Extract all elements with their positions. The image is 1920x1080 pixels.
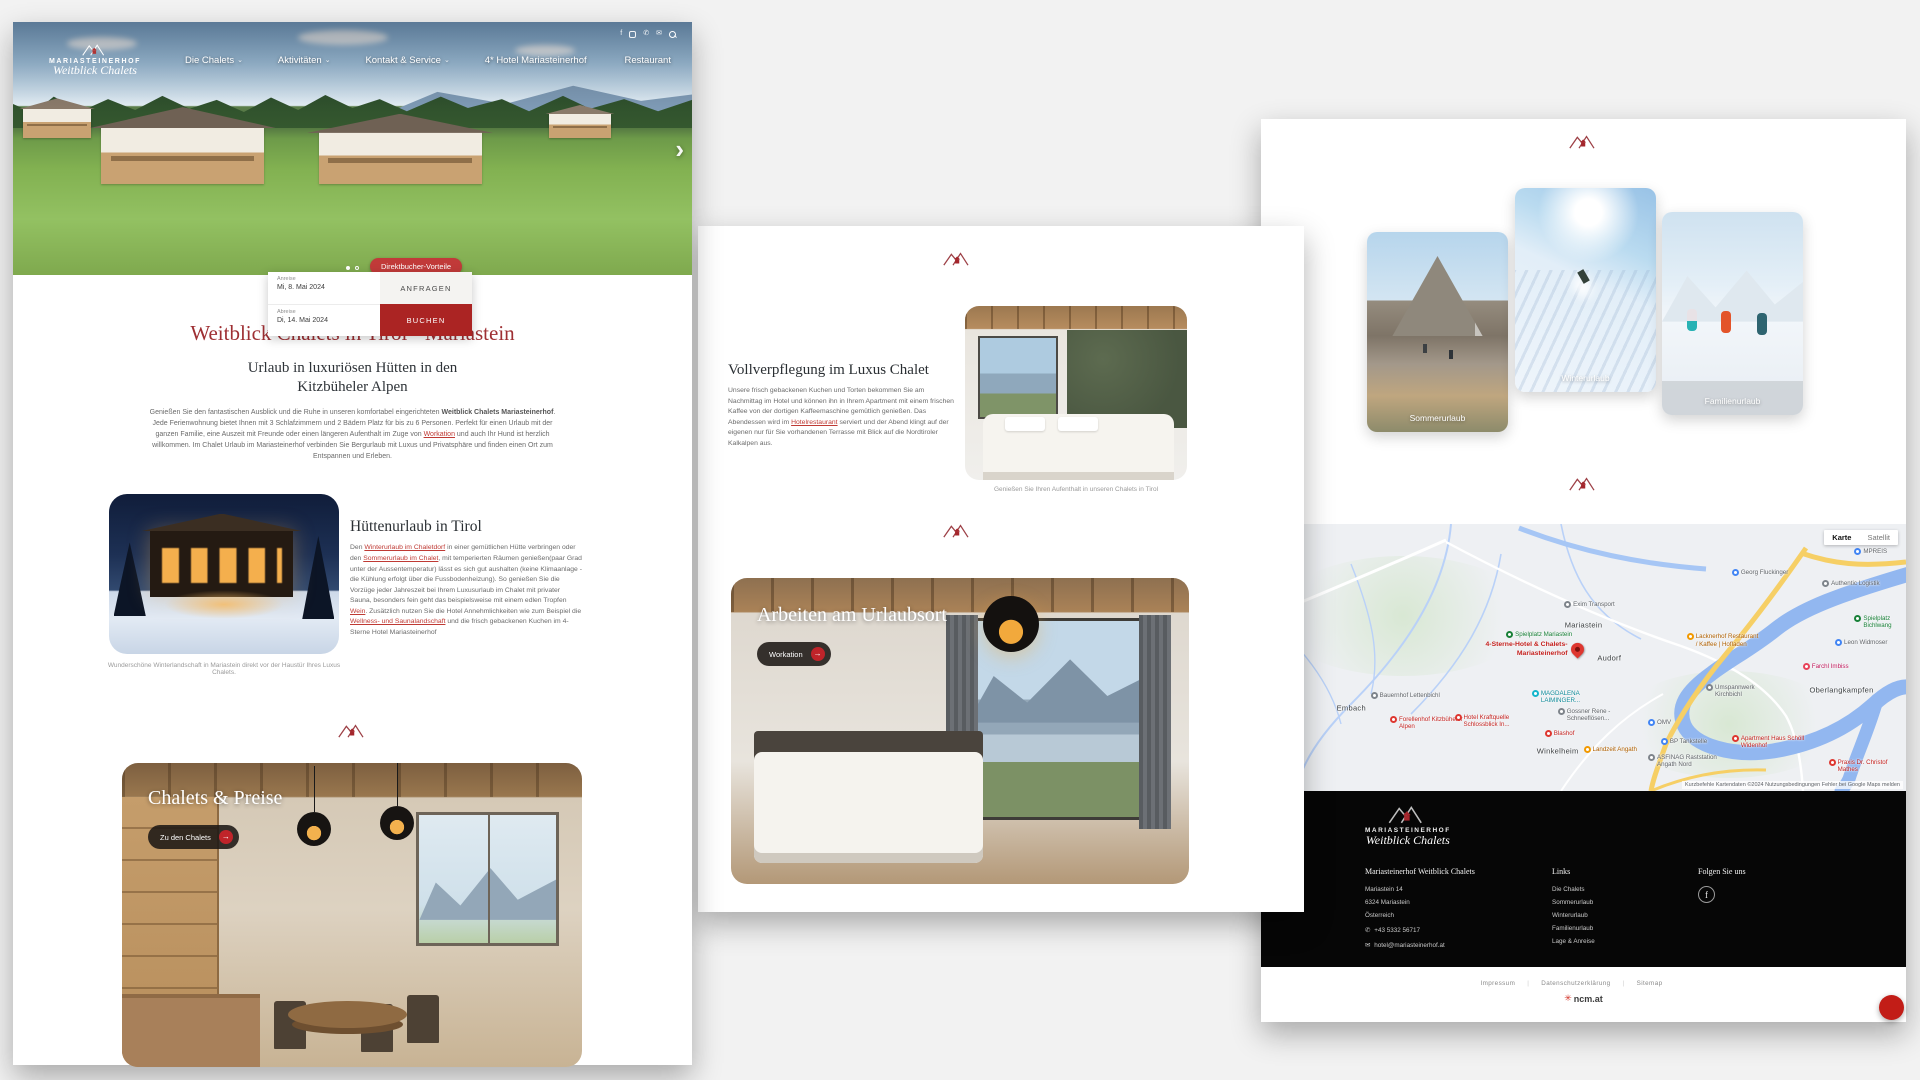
footer-follow-title: Folgen Sie uns — [1698, 867, 1746, 876]
map-poi[interactable]: MPREIS — [1854, 548, 1887, 555]
curtain-shape — [1139, 615, 1171, 829]
vollverpflegung-text: Vollverpflegung im Luxus Chalet Unsere f… — [728, 362, 960, 449]
address-line: Mariastein 14 — [1365, 886, 1535, 893]
page-home: f ✆ ✉ MARIASTEINERHOF Weitblick Chalets — [13, 22, 692, 1065]
map-satellit-button[interactable]: Satellit — [1859, 530, 1898, 545]
map-pin-icon — [1835, 639, 1842, 646]
map-poi[interactable]: Blashof — [1545, 730, 1575, 737]
map-town-label: Oberlangkampfen — [1809, 685, 1873, 694]
nav-item[interactable]: 4* Hotel Mariasteinerhof — [485, 55, 590, 66]
phone-icon: ✆ — [1365, 927, 1370, 934]
window-shape — [416, 812, 559, 946]
map-poi[interactable]: Georg Fluckinger — [1732, 569, 1788, 576]
footer-links-column: Links Die ChaletsSommerurlaubWinterurlau… — [1552, 867, 1595, 951]
holiday-card[interactable]: Familienurlaub — [1662, 212, 1803, 415]
tree-shape — [114, 542, 146, 616]
footer-social-column: Folgen Sie uns f — [1698, 867, 1746, 903]
map-poi[interactable]: Lacknerhof Restaurant / Kaffee | Hoflade… — [1687, 633, 1760, 647]
booking-buttons: ANFRAGEN BUCHEN — [380, 272, 472, 336]
map-pin-icon — [1648, 754, 1655, 761]
inline-link[interactable]: Workation — [424, 431, 455, 438]
map-pin-icon — [1687, 633, 1694, 640]
map-poi[interactable]: Umspannwerk Kirchbichl — [1706, 684, 1779, 698]
page-services: Vollverpflegung im Luxus Chalet Unsere f… — [698, 226, 1304, 912]
facebook-icon[interactable]: f — [620, 30, 622, 38]
brand-script: Weitblick Chalets — [1366, 833, 1450, 848]
night-scene — [109, 494, 339, 654]
map-poi[interactable]: Bauernhof Lettenbichl — [1371, 692, 1440, 699]
booking-widget: Anreise Mi, 8. Mai 2024 Abreise Di, 14. … — [268, 272, 472, 336]
footer-link[interactable]: Die Chalets — [1552, 886, 1595, 893]
photo-caption: Wunderschöne Winterlandschaft in Mariast… — [99, 662, 349, 676]
brand-script: Weitblick Chalets — [53, 63, 137, 78]
floating-action-button[interactable] — [1879, 995, 1904, 1020]
google-map[interactable]: Mariastein Audorf Embach Winkelheim Ober… — [1261, 524, 1906, 791]
map-pin-icon — [1648, 719, 1655, 726]
photo-caption: Genießen Sie Ihren Aufenthalt in unseren… — [965, 486, 1187, 493]
bedroom-photo — [965, 306, 1187, 480]
section-paragraph: Unsere frisch gebackenen Kuchen und Tort… — [728, 386, 960, 449]
map-pin-icon — [1558, 708, 1565, 715]
map-poi[interactable]: Gossner Rene - Schneeflösen... — [1558, 708, 1631, 722]
card-photo — [1367, 232, 1508, 432]
booking-dates: Anreise Mi, 8. Mai 2024 Abreise Di, 14. … — [268, 272, 380, 336]
map-poi[interactable]: Spielplatz Bichlwang — [1854, 615, 1906, 629]
footer-links: Die ChaletsSommerurlaubWinterurlaubFamil… — [1552, 886, 1595, 945]
section-divider — [13, 722, 692, 739]
holiday-card[interactable]: Sommerurlaub — [1367, 232, 1508, 432]
mail-icon[interactable]: ✉ — [656, 30, 662, 38]
zu-den-chalets-button[interactable]: Zu den Chalets → — [148, 825, 239, 849]
chevron-down-icon: ⌄ — [237, 56, 243, 64]
map-poi[interactable]: Spielplatz Mariastein — [1506, 631, 1572, 638]
huettenurlaub-text: Hüttenurlaub in Tirol Den Winterurlaub i… — [350, 518, 582, 638]
logo-mountain-icon — [82, 42, 108, 57]
nav-item[interactable]: Restaurant — [625, 55, 674, 66]
map-poi[interactable]: Leon Widmoser — [1835, 639, 1887, 646]
pendant-lamp — [380, 806, 414, 840]
carousel-dot-active[interactable] — [346, 266, 350, 270]
legal-link[interactable]: Impressum — [1480, 980, 1541, 987]
nav-item[interactable]: Aktivitäten ⌄ — [278, 55, 331, 66]
section-divider — [1261, 475, 1906, 492]
inline-link[interactable]: Sommerurlaub im Chalet — [363, 555, 438, 562]
map-pin-icon — [1854, 548, 1861, 555]
hero-carousel: f ✆ ✉ MARIASTEINERHOF Weitblick Chalets — [13, 22, 692, 275]
light-glow — [164, 590, 284, 619]
page-subtitle: Urlaub in luxuriösen Hütten in den Kitzb… — [223, 359, 483, 397]
winter-chalet-photo — [109, 494, 339, 654]
map-pin-icon — [1532, 690, 1539, 697]
carousel-dot[interactable] — [355, 266, 359, 270]
chalets-preise-banner[interactable]: Chalets & Preise Zu den Chalets → — [122, 763, 582, 1067]
chevron-down-icon: ⌄ — [444, 56, 450, 64]
anfragen-button[interactable]: ANFRAGEN — [380, 272, 472, 304]
mountain-house-icon — [338, 722, 368, 739]
map-town-label: Embach — [1337, 704, 1366, 713]
footer-links-title: Links — [1552, 867, 1595, 876]
phone-icon[interactable]: ✆ — [643, 30, 649, 38]
map-poi[interactable]: BP Tankstelle — [1661, 738, 1707, 745]
section-title: Hüttenurlaub in Tirol — [350, 518, 582, 536]
mountain-house-icon — [943, 250, 973, 267]
bedroom-scene — [965, 306, 1187, 480]
pendant-lamp — [983, 596, 1039, 652]
footer-logo: MARIASTEINERHOF Weitblick Chalets — [1365, 803, 1451, 848]
map-pin-icon — [1732, 735, 1739, 742]
chevron-down-icon: ⌄ — [325, 56, 331, 64]
table-shape — [288, 1001, 408, 1028]
map-attribution: Kurzbefehle Kartendaten ©2024 Nutzungsbe… — [1682, 781, 1903, 789]
huettenurlaub-section: Hüttenurlaub in Tirol Den Winterurlaub i… — [13, 494, 692, 694]
map-poi[interactable]: Hotel Kraftquelle Schlossblick In... — [1455, 714, 1528, 728]
inline-link[interactable]: Wellness- und Saunalandschaft — [350, 618, 445, 625]
map-poi[interactable]: Forellenhof Kitzbüheler Alpen — [1390, 716, 1463, 730]
map-pin-icon — [1564, 601, 1571, 608]
card-photo — [1515, 188, 1656, 392]
inline-link[interactable]: Hotelrestaurant — [791, 419, 837, 426]
agency-logo[interactable]: ✳ ncm.at — [1261, 993, 1906, 1004]
brand-logo[interactable]: MARIASTEINERHOF Weitblick Chalets — [31, 42, 159, 78]
chalet-shape — [150, 530, 293, 597]
instagram-icon[interactable] — [629, 31, 636, 38]
ncm-star-icon: ✳ — [1564, 993, 1572, 1004]
mail-icon: ✉ — [1365, 942, 1370, 949]
tree-shape — [302, 536, 334, 619]
inline-link[interactable]: Wein — [350, 608, 365, 615]
facebook-icon[interactable]: f — [1698, 886, 1715, 903]
map-poi[interactable]: Praxis Dr. Christof Mathes — [1829, 759, 1902, 773]
mountain-house-icon — [1569, 475, 1599, 492]
logo-mountain-icon — [1388, 803, 1428, 825]
map-pin-icon — [1829, 759, 1836, 766]
footer-address-title: Mariasteinerhof Weitblick Chalets — [1365, 867, 1535, 876]
legal-links: ImpressumDatenschutzerklärungSitemap — [1261, 980, 1906, 987]
map-poi[interactable]: Farchl Imbiss — [1803, 663, 1849, 670]
map-pin-icon — [1568, 640, 1586, 658]
map-poi[interactable]: Apartment Haus Schöll Widenhof — [1732, 735, 1805, 749]
workation-banner[interactable]: Arbeiten am Urlaubsort Workation → — [731, 578, 1189, 884]
legal-link[interactable]: Sitemap — [1637, 980, 1687, 987]
main-nav: MARIASTEINERHOF Weitblick Chalets Die Ch… — [13, 42, 692, 78]
carousel-dots — [346, 266, 359, 270]
card-photo — [1662, 212, 1803, 415]
window-shape — [978, 336, 1058, 420]
carousel-next-button[interactable]: › — [675, 134, 684, 165]
map-pin-icon — [1803, 663, 1810, 670]
pillow-shape — [1058, 417, 1098, 431]
address-line: 6324 Mariastein — [1365, 899, 1535, 906]
inline-link[interactable]: Winterurlaub im Chaletdorf — [364, 544, 445, 551]
map-pin-icon — [1371, 692, 1378, 699]
departure-field[interactable]: Abreise Di, 14. Mai 2024 — [268, 304, 380, 336]
nav-items: Die Chalets ⌄ Aktivitäten ⌄ Kontakt & Se… — [185, 55, 674, 66]
holiday-card[interactable]: Winterurlaub — [1515, 188, 1656, 392]
site-footer: MARIASTEINERHOF Weitblick Chalets Marias… — [1261, 791, 1906, 967]
address-line: Österreich — [1365, 912, 1535, 919]
footer-phone[interactable]: ✆ +43 5332 56717 — [1365, 927, 1535, 934]
footer-address-lines: Mariastein 146324 MariasteinÖsterreich — [1365, 886, 1535, 919]
composite-canvas: f ✆ ✉ MARIASTEINERHOF Weitblick Chalets — [0, 0, 1920, 1080]
footer-link[interactable]: Sommerurlaub — [1552, 899, 1595, 906]
map-type-control: Karte Satellit — [1824, 530, 1898, 545]
map-pin-icon — [1390, 716, 1397, 723]
nav-item[interactable]: Kontakt & Service ⌄ — [365, 55, 449, 66]
map-pin-icon — [1854, 615, 1861, 622]
page-overview: Sommerurlaub Winterurlaub Familienurlaub — [1261, 119, 1906, 1022]
arrival-field[interactable]: Anreise Mi, 8. Mai 2024 — [268, 272, 380, 304]
map-pin-icon — [1732, 569, 1739, 576]
workation-button[interactable]: Workation → — [757, 642, 831, 666]
chair-shape — [407, 995, 439, 1044]
map-pin-icon — [1506, 631, 1513, 638]
map-pin-icon — [1584, 746, 1591, 753]
map-karte-button[interactable]: Karte — [1824, 530, 1859, 545]
banner-title: Chalets & Preise — [148, 787, 282, 810]
buchen-button[interactable]: BUCHEN — [380, 304, 472, 336]
arrow-right-icon: → — [811, 647, 825, 661]
island-shape — [122, 994, 260, 1067]
map-pin-icon — [1545, 730, 1552, 737]
map-poi[interactable]: Authentic Logistik — [1822, 580, 1880, 587]
bed-shape — [754, 752, 983, 862]
footer-link[interactable]: Winterurlaub — [1552, 912, 1595, 919]
intro-paragraph: Genießen Sie den fantastischen Ausblick … — [143, 407, 563, 463]
map-pin-icon — [1822, 580, 1829, 587]
section-divider — [698, 250, 1218, 267]
map-poi[interactable]: Exim Transport — [1564, 601, 1615, 608]
pendant-lamp — [297, 812, 331, 846]
footer-link[interactable]: Lage & Anreise — [1552, 938, 1595, 945]
topbar: f ✆ ✉ — [620, 30, 676, 38]
search-icon[interactable] — [669, 31, 676, 38]
map-town-label: Winkelheim — [1537, 746, 1579, 755]
map-pin-icon — [1706, 684, 1713, 691]
map-poi[interactable]: OMV — [1648, 719, 1671, 726]
arrow-right-icon: → — [219, 830, 233, 844]
footer-link[interactable]: Familienurlaub — [1552, 925, 1595, 932]
hotel-map-marker[interactable]: 4-Sterne-Hotel & Chalets-Mariasteinerhof — [1484, 641, 1584, 657]
map-pin-icon — [1661, 738, 1668, 745]
mountain-house-icon — [943, 522, 973, 539]
footer-email[interactable]: ✉ hotel@mariasteinerhof.at — [1365, 942, 1535, 949]
map-pin-icon — [1455, 714, 1462, 721]
legal-link[interactable]: Datenschutzerklärung — [1541, 980, 1636, 987]
holiday-cards: Sommerurlaub Winterurlaub Familienurlaub — [1261, 119, 1906, 479]
section-divider — [698, 522, 1218, 539]
section-paragraph: Den Winterurlaub im Chaletdorf in einer … — [350, 543, 582, 638]
map-poi[interactable]: MAGDALENA LAIMINGER... — [1532, 690, 1605, 704]
nav-item[interactable]: Die Chalets ⌄ — [185, 55, 243, 66]
footer-address-column: Mariasteinerhof Weitblick Chalets Marias… — [1365, 867, 1535, 949]
window-shape — [965, 618, 1157, 820]
banner-title: Arbeiten am Urlaubsort — [757, 604, 947, 627]
map-poi[interactable]: Landzeit Angath — [1584, 746, 1637, 753]
footer-bottom-bar: ImpressumDatenschutzerklärungSitemap ✳ n… — [1261, 967, 1906, 1022]
section-title: Vollverpflegung im Luxus Chalet — [728, 362, 960, 379]
pillow-shape — [1005, 417, 1045, 431]
map-town-label: Audorf — [1597, 653, 1621, 662]
map-poi[interactable]: ASFINAG Raststation Angath Nord — [1648, 754, 1721, 768]
map-town-label: Mariastein — [1565, 621, 1603, 630]
